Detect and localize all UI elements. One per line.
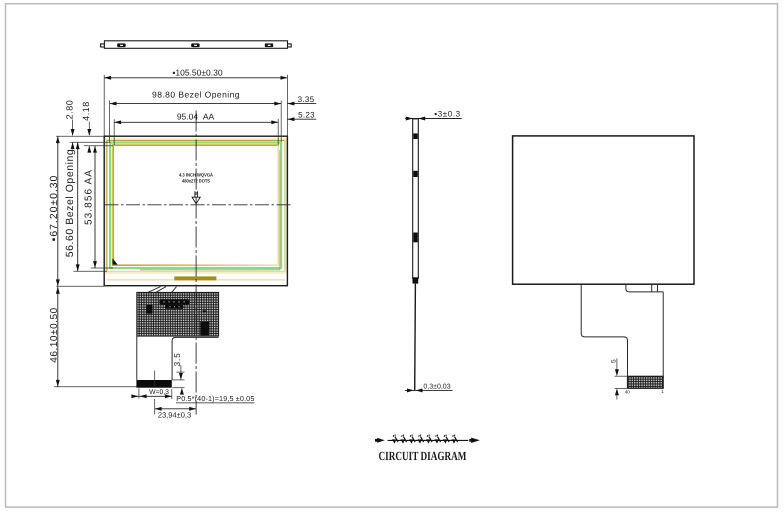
svg-text:5.23: 5.23 xyxy=(298,110,315,119)
svg-text:40: 40 xyxy=(625,389,631,394)
svg-text:0,3±0,03: 0,3±0,03 xyxy=(423,384,450,391)
svg-text:53.856 AA: 53.856 AA xyxy=(83,169,94,225)
svg-text:CIRCUIT DIAGRAM: CIRCUIT DIAGRAM xyxy=(379,449,467,463)
svg-text:98.80 Bezel Opening: 98.80 Bezel Opening xyxy=(152,89,240,99)
svg-text:46.10±0.50: 46.10±0.50 xyxy=(49,307,60,362)
svg-text:3.5: 3.5 xyxy=(172,352,182,366)
svg-text:5: 5 xyxy=(610,359,617,363)
svg-text:P0.5*(40-1)=19,5 ±0.05: P0.5*(40-1)=19,5 ±0.05 xyxy=(176,394,254,403)
svg-text:W=0,3: W=0,3 xyxy=(149,389,169,396)
svg-text:3.35: 3.35 xyxy=(298,95,315,104)
svg-text:2.80: 2.80 xyxy=(65,100,75,120)
svg-text:23,94±0,3: 23,94±0,3 xyxy=(158,410,191,419)
svg-text:1: 1 xyxy=(661,389,664,394)
svg-text:▪105.50±0.30: ▪105.50±0.30 xyxy=(172,67,222,77)
svg-text:▪3±0.3: ▪3±0.3 xyxy=(434,110,460,119)
svg-text:56.60 Bezel Opening: 56.60 Bezel Opening xyxy=(64,149,76,258)
svg-text:▪67.20±0.30: ▪67.20±0.30 xyxy=(49,175,60,242)
svg-text:4.18: 4.18 xyxy=(81,101,91,121)
